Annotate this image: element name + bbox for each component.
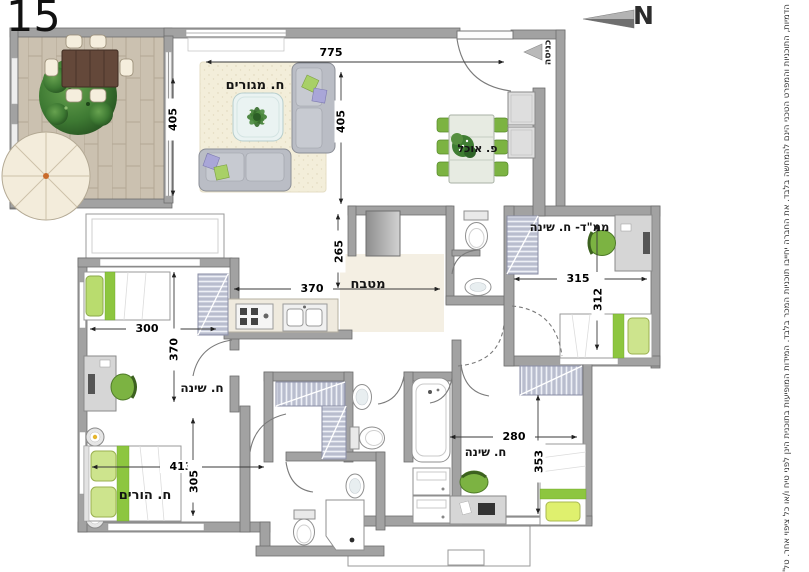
table-plant [247,107,267,127]
bathroom-bottom [294,474,365,550]
bedroom-bottom-bed [540,444,586,525]
parents-bed [84,446,181,521]
kitchen-sink [283,304,327,331]
dim-kitchen-depth: 265 [333,231,346,273]
room-label-mamad: ממ"ד- ח. שינה [522,220,617,234]
kitchen-counter [228,299,338,332]
plan-drawing [0,0,809,572]
balcony-umbrella [2,132,90,220]
planter-box [86,214,224,258]
entrance-label: כניסה [543,35,554,71]
bathroom-middle [350,385,385,450]
kitchen-floor [340,254,444,332]
hall-closets [276,382,346,459]
dim-bedroom-left-width: 300 [126,322,168,335]
dim-living-height: 405 [335,101,348,143]
mamad-bed [560,314,652,358]
coffee-table [233,93,283,141]
parents-furniture [84,428,181,528]
mamad-furniture [507,215,652,358]
room-label-living: ח. מגורים [205,78,305,93]
dim-kitchen-width: 370 [291,282,333,295]
north-label: N [633,1,654,30]
dim-balcony-height: 405 [167,99,180,141]
room-label-bedroom-left: ח. שינה [172,381,232,395]
stove [236,304,273,329]
room-label-parents: ח. הורים [110,488,180,503]
kitchen-tv-unit [366,211,400,256]
bathtub-room [412,378,450,523]
disclaimer-text: הדמיות, התוכניות והמפרט הטכני הינם להמחש… [782,4,792,570]
dim-parents-depth: 305 [188,461,201,503]
entrance-arrow-icon [524,44,542,60]
room-label-dining: פ. אוכל [450,142,505,155]
north-arrow-icon [583,10,634,28]
room-label-kitchen: מטבח [338,277,398,292]
unit-number: 15 [6,0,61,41]
entry-cabinets [508,92,535,158]
dim-bedroom-left-depth: 370 [168,329,181,371]
floor-plan: 15 N כניסה הדמיות, התוכניות והמפרט הטכני… [0,0,809,572]
dim-bedroom-bottom-depth: 353 [533,441,546,483]
bedroom-left-bed [84,272,170,320]
room-label-bedroom-bottom: ח. שינה [458,445,513,459]
dim-mamad-depth: 312 [592,279,605,321]
dim-bedroom-bottom-width: 280 [493,430,535,443]
dim-living-width: 775 [310,46,352,59]
